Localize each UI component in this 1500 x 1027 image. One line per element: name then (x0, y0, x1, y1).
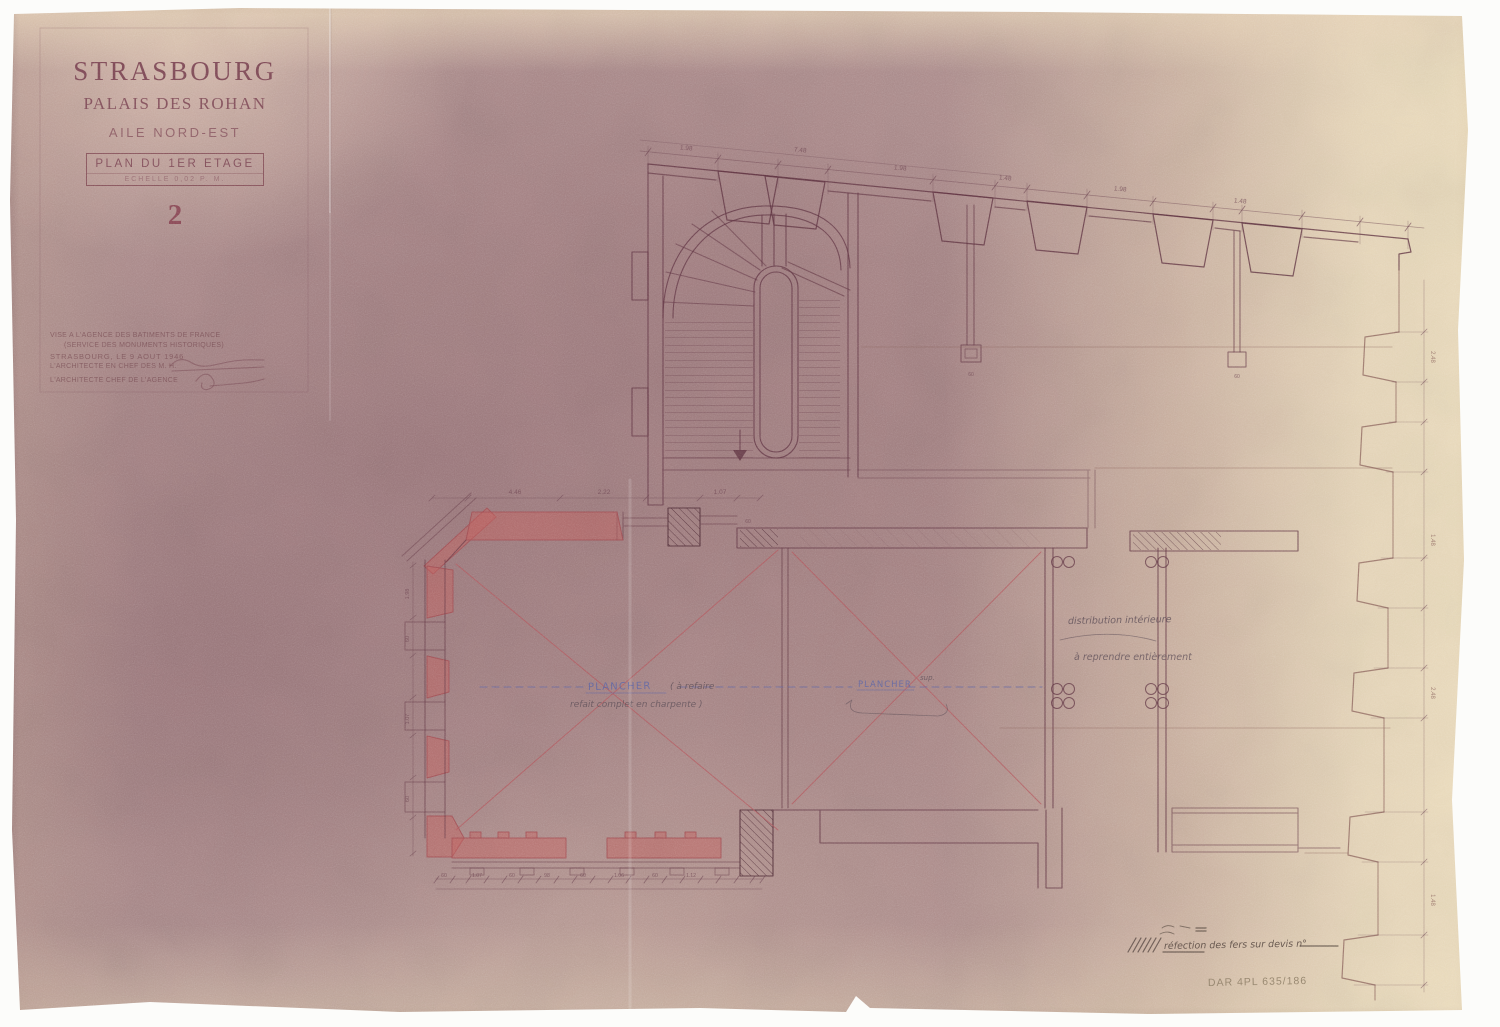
stair-top-flight (762, 214, 786, 266)
archive-reference: DAR 4PL 635/186 (1208, 975, 1307, 989)
dim-label: 1.48 (999, 174, 1013, 182)
scan-background: 1.98 7.48 1.98 1.48 1.98 1.48 4.46 2.22 … (0, 0, 1500, 1027)
top-exterior-wall (648, 164, 1411, 367)
main-staircase (663, 206, 850, 470)
corridor-lines (858, 470, 1095, 528)
dim-label: 60 (405, 636, 411, 642)
dim-label: 2.48 (1429, 351, 1435, 363)
dim-label: 4.46 (509, 489, 522, 496)
paper-creases (330, 8, 630, 1010)
dim-label: 60 (441, 873, 447, 879)
right-window-bay (1352, 668, 1388, 718)
legend-scribbles (1160, 926, 1206, 934)
plancher-label-west: PLANCHER (588, 681, 652, 693)
hatched-piers (668, 508, 773, 876)
faint-interior-ties (862, 347, 1392, 853)
approval-stamp: VISE A L'AGENCE DES BATIMENTS DE FRANCE … (50, 331, 280, 386)
partition-strip-a (1045, 548, 1053, 808)
room-note-line1: distribution intérieure (1068, 614, 1172, 627)
dim-labels: 1.98 7.48 1.98 1.48 1.98 1.48 4.46 2.22 … (405, 144, 1435, 906)
dim-label: 1.98 (680, 144, 694, 152)
dim-label: 60 (968, 372, 974, 378)
stamp-line: VISE A L'AGENCE DES BATIMENTS DE FRANCE (50, 331, 280, 341)
dim-label: 1.98 (405, 589, 411, 600)
top-dim-upper (640, 140, 1010, 176)
dim-label: 2.22 (598, 489, 611, 496)
room-note-line2: à reprendre entièrement (1074, 652, 1193, 663)
dim-label: 60 (652, 873, 658, 879)
wall-hatch (740, 529, 778, 547)
spine-wall-west (737, 528, 1087, 548)
salon-top-jambs (617, 512, 737, 540)
window-bay (933, 192, 993, 245)
dim-label: 7.48 (794, 146, 808, 154)
stair-winders (663, 211, 766, 306)
dim-label: 1.07 (472, 873, 482, 879)
right-window-bay (1348, 812, 1384, 862)
right-window-bay (1357, 558, 1393, 608)
window-recess (632, 252, 648, 300)
wall-hatch (1133, 532, 1221, 550)
sheet-number: 2 (55, 199, 295, 232)
plancher-note-1: ( à refaire (670, 682, 715, 692)
stair-hall-wall (848, 193, 858, 477)
room-note-brace (1060, 634, 1156, 641)
red-masonry-walls (424, 508, 721, 858)
stair-outer-wall (663, 206, 850, 318)
base-mouldings (452, 862, 740, 868)
dim-label: 1.12 (686, 873, 696, 879)
corner-step (1360, 222, 1408, 227)
dim-label: 60 (509, 873, 515, 879)
dim-label: 60 (580, 873, 586, 879)
right-exterior-wall (862, 270, 1399, 1000)
dim-label: 2.48 (1429, 687, 1435, 699)
stair-break-line (782, 262, 850, 296)
stair-inner-wall (673, 215, 841, 318)
plancher-sup-note: sup. (920, 674, 935, 682)
plan-label: PLAN DU 1ER ETAGE (87, 154, 263, 173)
stair-direction-arrow (733, 450, 747, 461)
dim-label: 98 (544, 873, 550, 879)
legend-rule (1163, 946, 1338, 952)
dim-label: 1.98 (1114, 185, 1128, 193)
title-block: STRASBOURG PALAIS DES ROHAN AILE NORD-ES… (55, 56, 295, 232)
window-bay (718, 171, 778, 224)
south-corridor-east (1172, 808, 1340, 852)
legend-note: réfection des fers sur devis n° (1164, 939, 1307, 952)
right-dim-ticks (1421, 329, 1427, 988)
dim-label: 1.48 (1234, 197, 1248, 205)
window-recess (632, 388, 648, 436)
window-bay (1027, 201, 1087, 254)
top-dim-ticks (645, 148, 1411, 231)
right-dim-ties (1354, 332, 1428, 985)
top-dim-line (640, 151, 1424, 228)
red-diagonal-braces (456, 550, 1041, 830)
stamp-line: L'ARCHITECTE CHEF DE L'AGENCE (50, 376, 280, 386)
dim-label: 1.98 (894, 164, 908, 172)
plancher-bracket (846, 700, 947, 716)
mid-dim-ticks (429, 495, 763, 501)
chamfer-moulding (402, 493, 476, 561)
legend-hatch-sample (1128, 938, 1161, 952)
plan-label-box: PLAN DU 1ER ETAGE ECHELLE 0,02 P. M. (86, 153, 264, 186)
stamp-line: (SERVICE DES MONUMENTS HISTORIQUES) (50, 341, 280, 351)
dim-label: 60 (405, 796, 411, 802)
window-sills (405, 622, 445, 812)
drawing-sheet: 1.98 7.48 1.98 1.48 1.98 1.48 4.46 2.22 … (0, 0, 1500, 1027)
south-corridor (773, 808, 1062, 888)
right-window-bay (1360, 422, 1396, 472)
salon-outline (402, 493, 740, 875)
left-exterior-wall (632, 164, 663, 505)
dim-label: 60 (1234, 374, 1240, 380)
stair-newel-inner (760, 272, 792, 452)
window-pier (427, 566, 453, 618)
dim-label: 1.07 (714, 489, 727, 496)
dim-label: 1.07 (405, 714, 411, 725)
wall-hatch-sparse (800, 529, 1040, 547)
title-city: STRASBOURG (55, 56, 295, 87)
salon-bottom-wall-west (452, 838, 566, 858)
moulding-notches (470, 868, 729, 875)
dim-label: 1.48 (1429, 534, 1435, 546)
stair-left-flight-treads (665, 318, 753, 458)
corner-pier (427, 816, 464, 857)
dimension-lines: 1.98 7.48 1.98 1.48 1.98 1.48 4.46 2.22 … (405, 140, 1435, 992)
annotations-layer: PLANCHER ( à refaire refait complet en c… (480, 614, 1338, 989)
salon-bottom-wall-east (607, 838, 721, 858)
stair-right-flight-treads (799, 300, 840, 458)
chamfer-corner-wall (424, 508, 496, 574)
salon-top-wall (466, 512, 623, 540)
bottom-dim-ticks (434, 876, 765, 883)
plancher-note-2: refait complet en charpente ) (570, 700, 703, 710)
stamp-line: L'ARCHITECTE EN CHEF DES M. H. (50, 362, 280, 372)
window-bay (1242, 223, 1302, 276)
interior-walls (617, 193, 1340, 888)
dim-label: 60 (745, 519, 751, 525)
title-wing: AILE NORD-EST (55, 125, 295, 140)
top-witness-lines (648, 146, 1408, 249)
stair-landing (663, 458, 850, 470)
title-building: PALAIS DES ROHAN (55, 94, 295, 114)
bottom-dim-lines (436, 879, 762, 889)
right-window-bay (1363, 332, 1399, 382)
door-pivot-circles (1052, 557, 1169, 709)
stamp-line: STRASBOURG, LE 9 AOUT 1946 (50, 352, 280, 362)
window-bay (1153, 214, 1213, 267)
right-window-bay (1342, 935, 1378, 985)
salon-divider-wall (782, 548, 788, 808)
dim-label: 1.48 (1429, 894, 1435, 906)
spine-wall-east (1130, 531, 1298, 551)
window-pier (427, 736, 449, 778)
scale-label: ECHELLE 0,02 P. M. (87, 173, 263, 185)
dim-label: 1.06 (614, 873, 624, 879)
left-dim-ticks (410, 563, 416, 856)
chimney-flues (961, 205, 1246, 367)
window-pier (427, 656, 449, 698)
plancher-label-east: PLANCHER (858, 680, 912, 690)
stair-newel-outer (754, 266, 798, 458)
partition-strip-b (1158, 548, 1166, 852)
window-bay (765, 176, 825, 229)
